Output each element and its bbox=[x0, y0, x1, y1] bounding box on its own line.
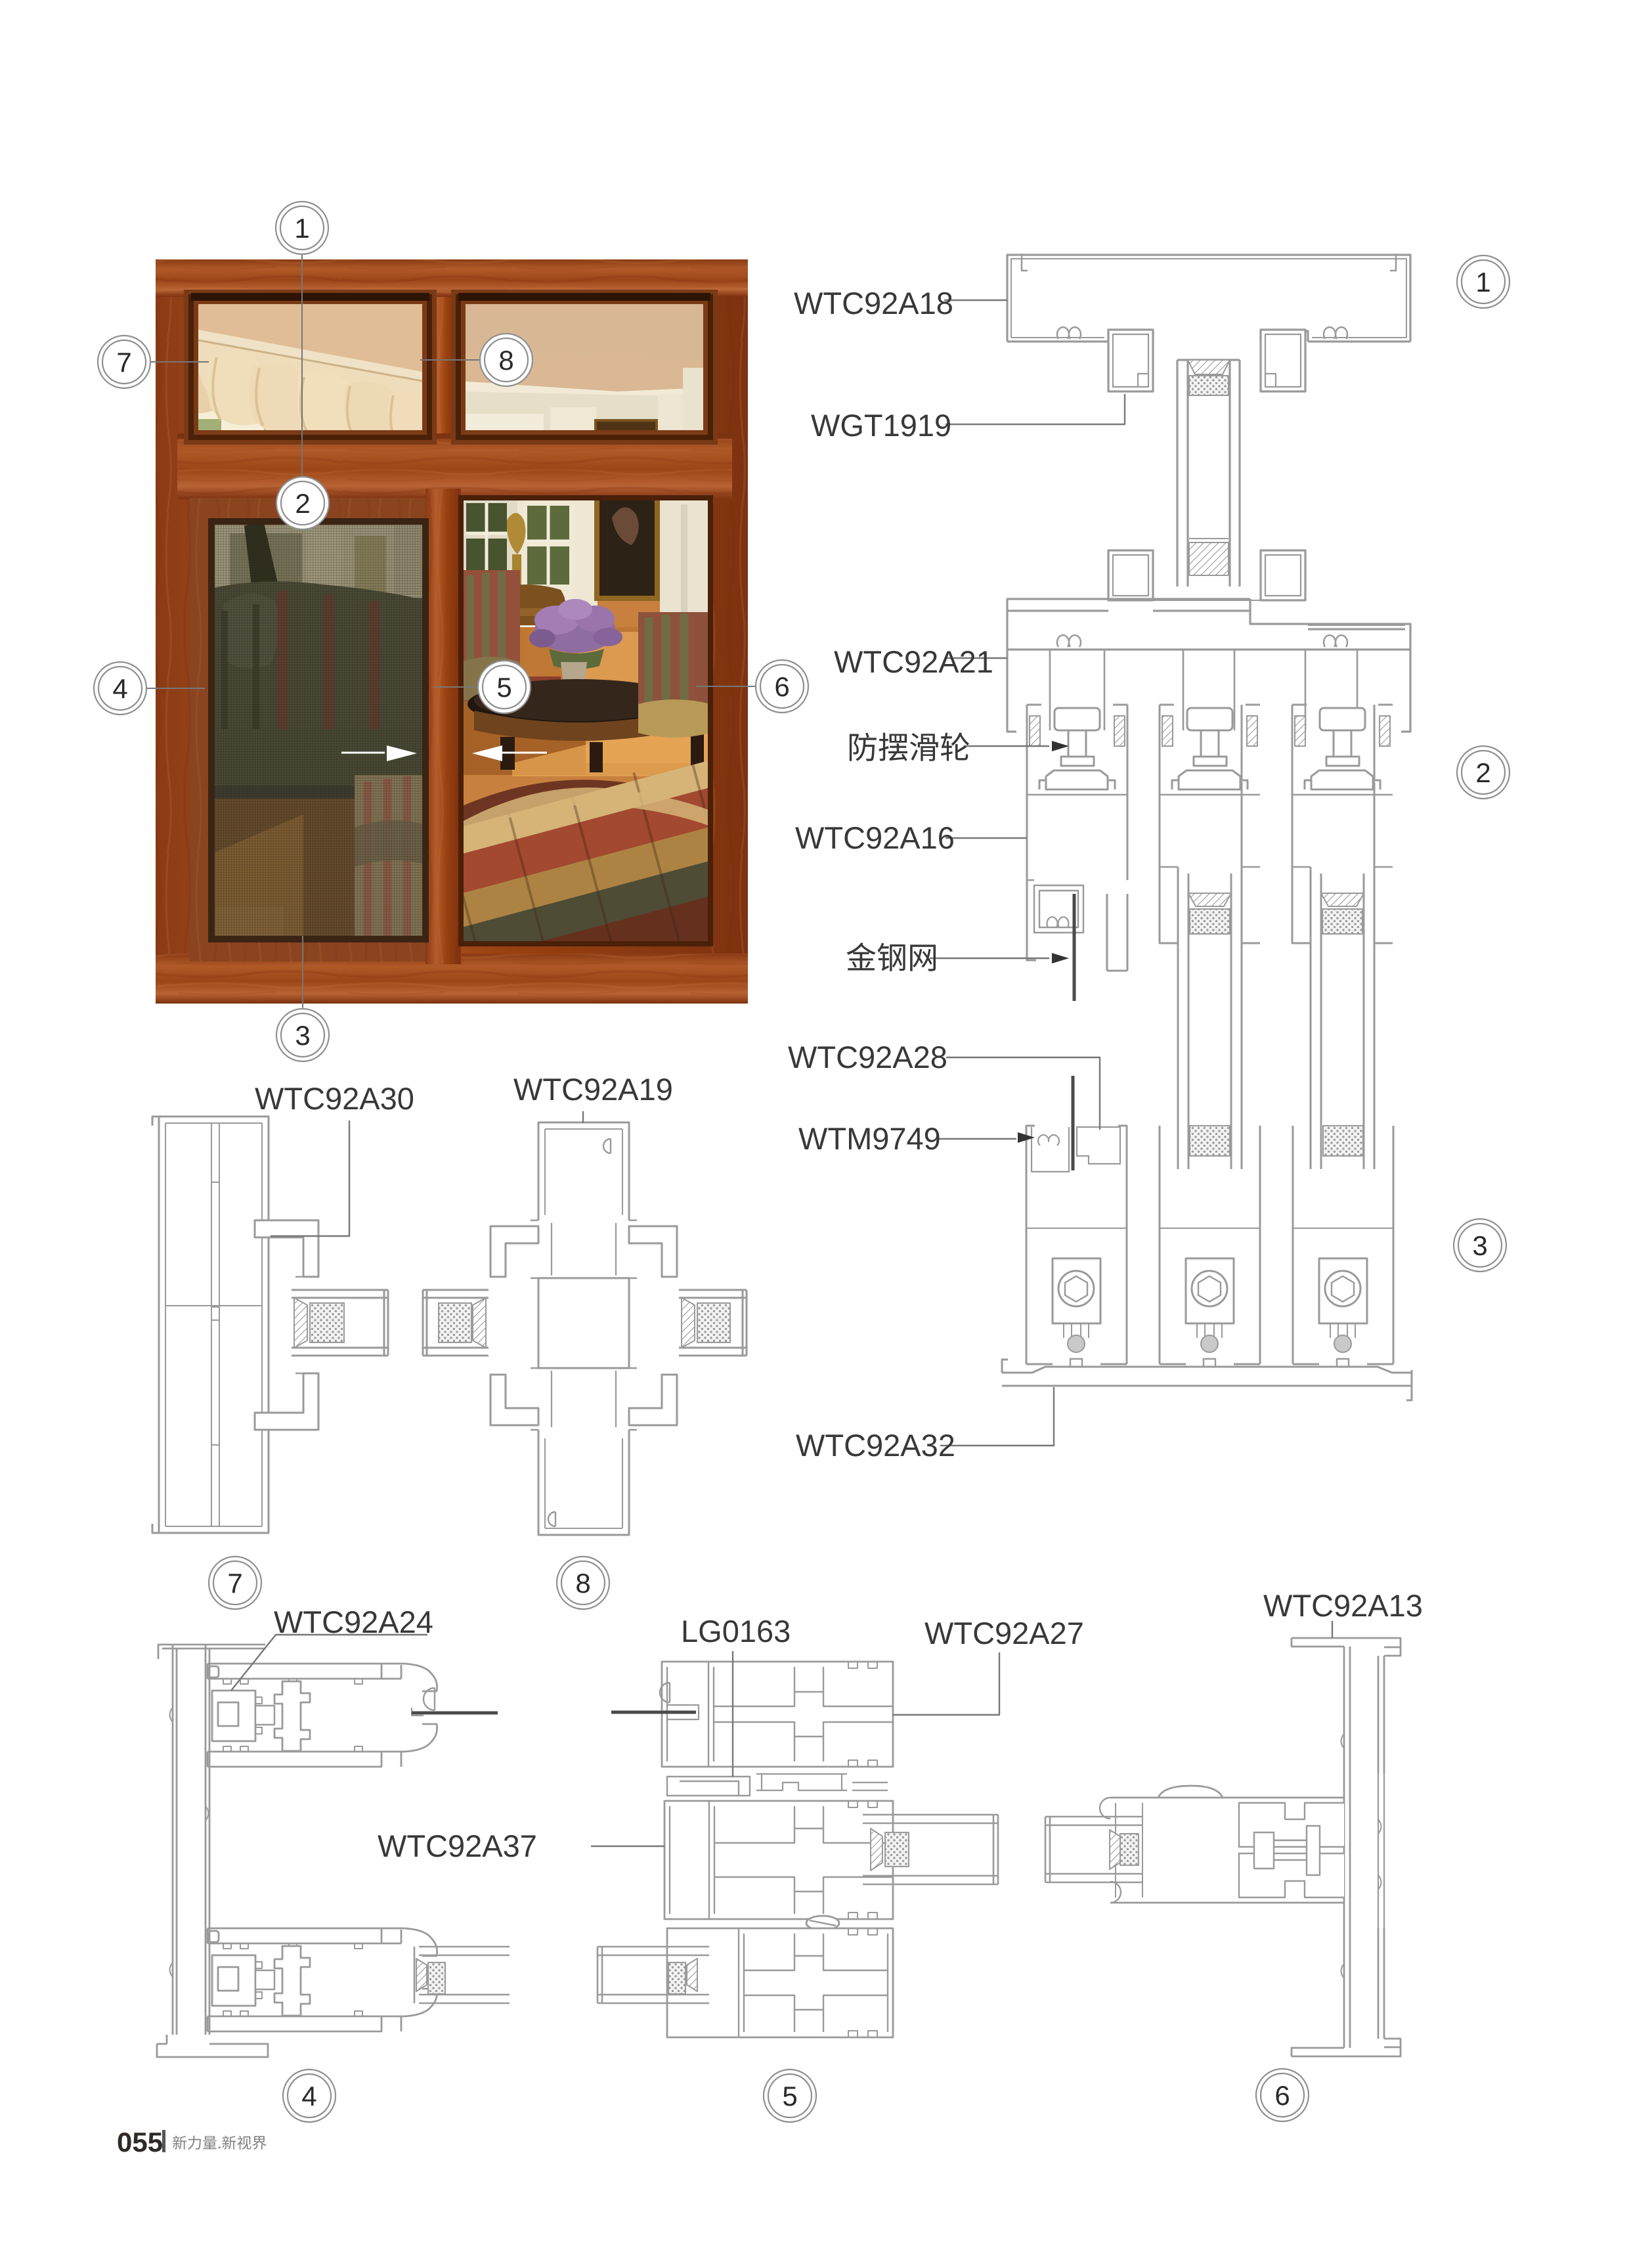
svg-text:WGT1919: WGT1919 bbox=[811, 408, 951, 443]
svg-text:7: 7 bbox=[227, 1568, 242, 1599]
svg-text:7: 7 bbox=[116, 347, 131, 378]
svg-text:5: 5 bbox=[496, 672, 511, 703]
svg-text:WTC92A18: WTC92A18 bbox=[794, 286, 953, 321]
svg-text:8: 8 bbox=[498, 345, 513, 376]
svg-text:WTC92A19: WTC92A19 bbox=[513, 1072, 673, 1107]
svg-text:WTC92A21: WTC92A21 bbox=[834, 644, 993, 679]
svg-text:WTC92A28: WTC92A28 bbox=[788, 1040, 947, 1074]
svg-text:5: 5 bbox=[782, 2081, 797, 2112]
svg-text:WTC92A37: WTC92A37 bbox=[378, 1828, 537, 1863]
svg-text:4: 4 bbox=[301, 2081, 316, 2112]
svg-text:WTC92A32: WTC92A32 bbox=[796, 1428, 955, 1463]
svg-text:8: 8 bbox=[575, 1568, 590, 1599]
svg-text:WTC92A30: WTC92A30 bbox=[255, 1081, 414, 1116]
svg-text:6: 6 bbox=[774, 671, 789, 702]
svg-text:2: 2 bbox=[1475, 757, 1490, 788]
svg-text:1: 1 bbox=[294, 213, 309, 244]
svg-text:WTC92A13: WTC92A13 bbox=[1263, 1588, 1423, 1623]
svg-text:3: 3 bbox=[295, 1020, 310, 1051]
svg-text:WTC92A27: WTC92A27 bbox=[924, 1616, 1084, 1650]
svg-text:WTC92A16: WTC92A16 bbox=[795, 820, 955, 855]
svg-text:2: 2 bbox=[295, 488, 310, 519]
svg-text:4: 4 bbox=[112, 673, 127, 704]
svg-text:055: 055 bbox=[117, 2127, 163, 2158]
svg-text:WTM9749: WTM9749 bbox=[798, 1121, 941, 1156]
svg-text:1: 1 bbox=[1475, 267, 1490, 298]
svg-text:WTC92A24: WTC92A24 bbox=[274, 1605, 433, 1639]
svg-text:6: 6 bbox=[1274, 2080, 1290, 2111]
svg-text:3: 3 bbox=[1472, 1230, 1487, 1261]
svg-text:LG0163: LG0163 bbox=[681, 1614, 791, 1649]
